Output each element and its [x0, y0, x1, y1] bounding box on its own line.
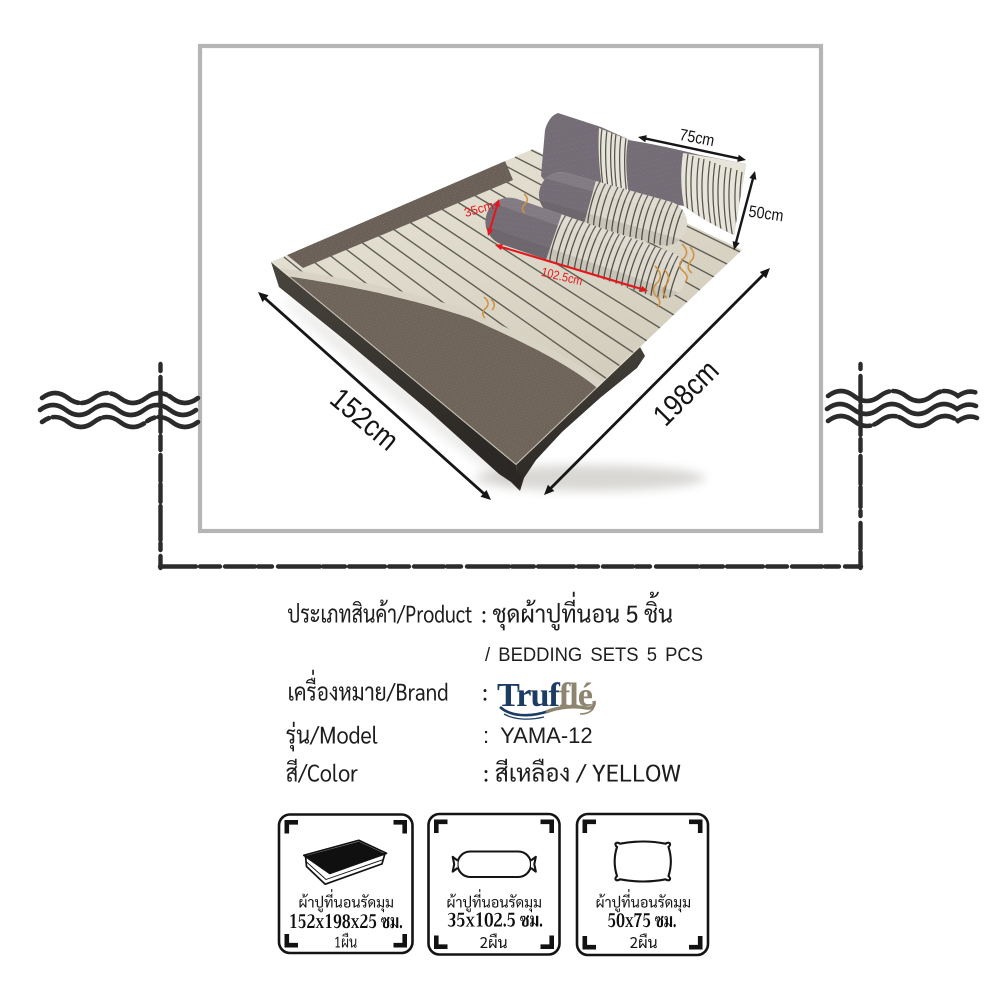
svg-text:: YAMA-12: : YAMA-12: [483, 723, 593, 748]
svg-text:/ BEDDING SETS 5 PCS: / BEDDING SETS 5 PCS: [485, 644, 703, 666]
